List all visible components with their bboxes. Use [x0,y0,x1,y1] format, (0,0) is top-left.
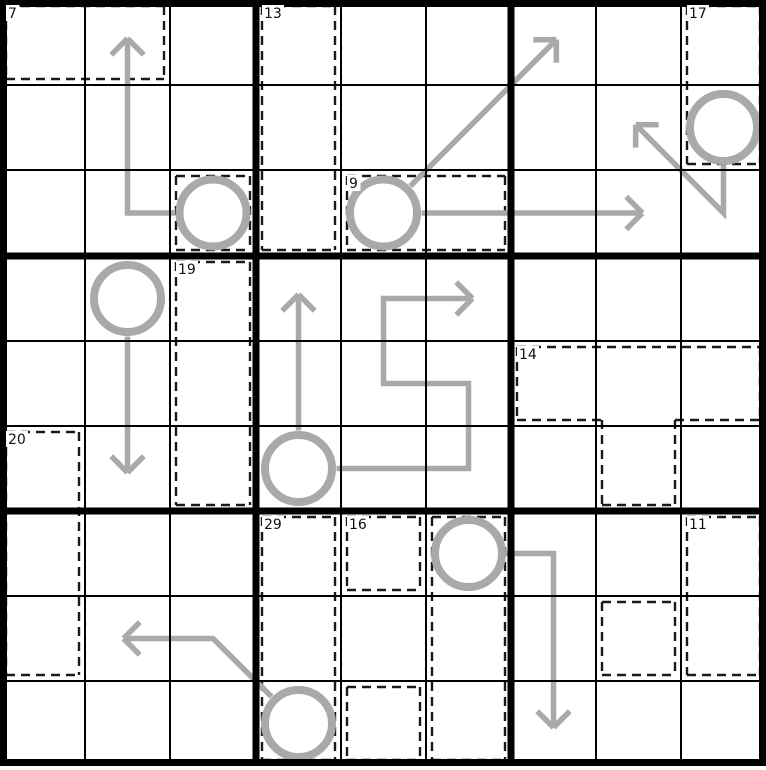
cell-r2c5[interactable] [341,85,426,170]
cage-sum: 9 [349,176,358,192]
cell-r9c9[interactable] [681,681,766,766]
grid-line-h [0,169,766,171]
box-line-h [0,759,766,766]
cage-sum: 13 [264,6,282,22]
cage-sum: 29 [264,517,282,533]
cell-r6c8[interactable] [596,426,681,511]
cell-r9c5[interactable] [341,681,426,766]
cell-r5c3[interactable] [170,341,256,426]
grid-line-v [340,0,342,766]
box-line-v [253,0,260,766]
cell-r8c6[interactable] [426,596,511,681]
cell-r4c7[interactable] [511,256,596,341]
cell-r7c1[interactable] [0,511,85,596]
cell-r8c4[interactable] [256,596,341,681]
cell-r6c9[interactable] [681,426,766,511]
cell-r8c9[interactable] [681,596,766,681]
grid-line-h [0,425,766,427]
cell-r9c2[interactable] [85,681,170,766]
cage-sum: 14 [519,347,537,363]
box-line-h [0,253,766,260]
cell-r4c9[interactable] [681,256,766,341]
cell-r2c1[interactable] [0,85,85,170]
cell-r9c8[interactable] [596,681,681,766]
grid-line-h [0,680,766,682]
cell-r5c8[interactable] [596,341,681,426]
cell-r6c7[interactable] [511,426,596,511]
box-line-v [759,0,766,766]
grid-line-h [0,340,766,342]
grid-line-v [425,0,427,766]
cage-sum: 19 [178,262,196,278]
grid-line-v [84,0,86,766]
cell-r2c7[interactable] [511,85,596,170]
cell-r6c3[interactable] [170,426,256,511]
cell-r5c9[interactable] [681,341,766,426]
cell-r9c1[interactable] [0,681,85,766]
grid-line-h [0,84,766,86]
sudoku-board: 713179191420291611 [0,0,766,766]
cell-r1c3[interactable] [170,0,256,85]
cell-r9c3[interactable] [170,681,256,766]
cage-sum: 16 [349,517,367,533]
grid-line-v [680,0,682,766]
cage-sum: 11 [689,517,707,533]
cell-r9c6[interactable] [426,681,511,766]
box-line-v [508,0,515,766]
cell-r2c3[interactable] [170,85,256,170]
cage-sum: 20 [8,432,26,448]
cell-r1c8[interactable] [596,0,681,85]
cell-r1c6[interactable] [426,0,511,85]
cell-r4c1[interactable] [0,256,85,341]
cell-r7c2[interactable] [85,511,170,596]
cell-r8c8[interactable] [596,596,681,681]
cell-r2c4[interactable] [256,85,341,170]
cage-sum: 17 [689,6,707,22]
box-line-h [0,0,766,7]
cell-r5c1[interactable] [0,341,85,426]
grid-line-v [595,0,597,766]
cell-r7c3[interactable] [170,511,256,596]
cell-r3c4[interactable] [256,170,341,256]
grid-line-h [0,595,766,597]
box-line-h [0,508,766,515]
cell-r7c8[interactable] [596,511,681,596]
box-line-v [0,0,7,766]
cell-r1c5[interactable] [341,0,426,85]
cell-r3c1[interactable] [0,170,85,256]
cell-r4c8[interactable] [596,256,681,341]
cell-r8c1[interactable] [0,596,85,681]
cell-r8c5[interactable] [341,596,426,681]
puzzle-grid: 713179191420291611 [0,0,766,766]
cage-sum: 7 [8,6,17,22]
grid-line-v [169,0,171,766]
